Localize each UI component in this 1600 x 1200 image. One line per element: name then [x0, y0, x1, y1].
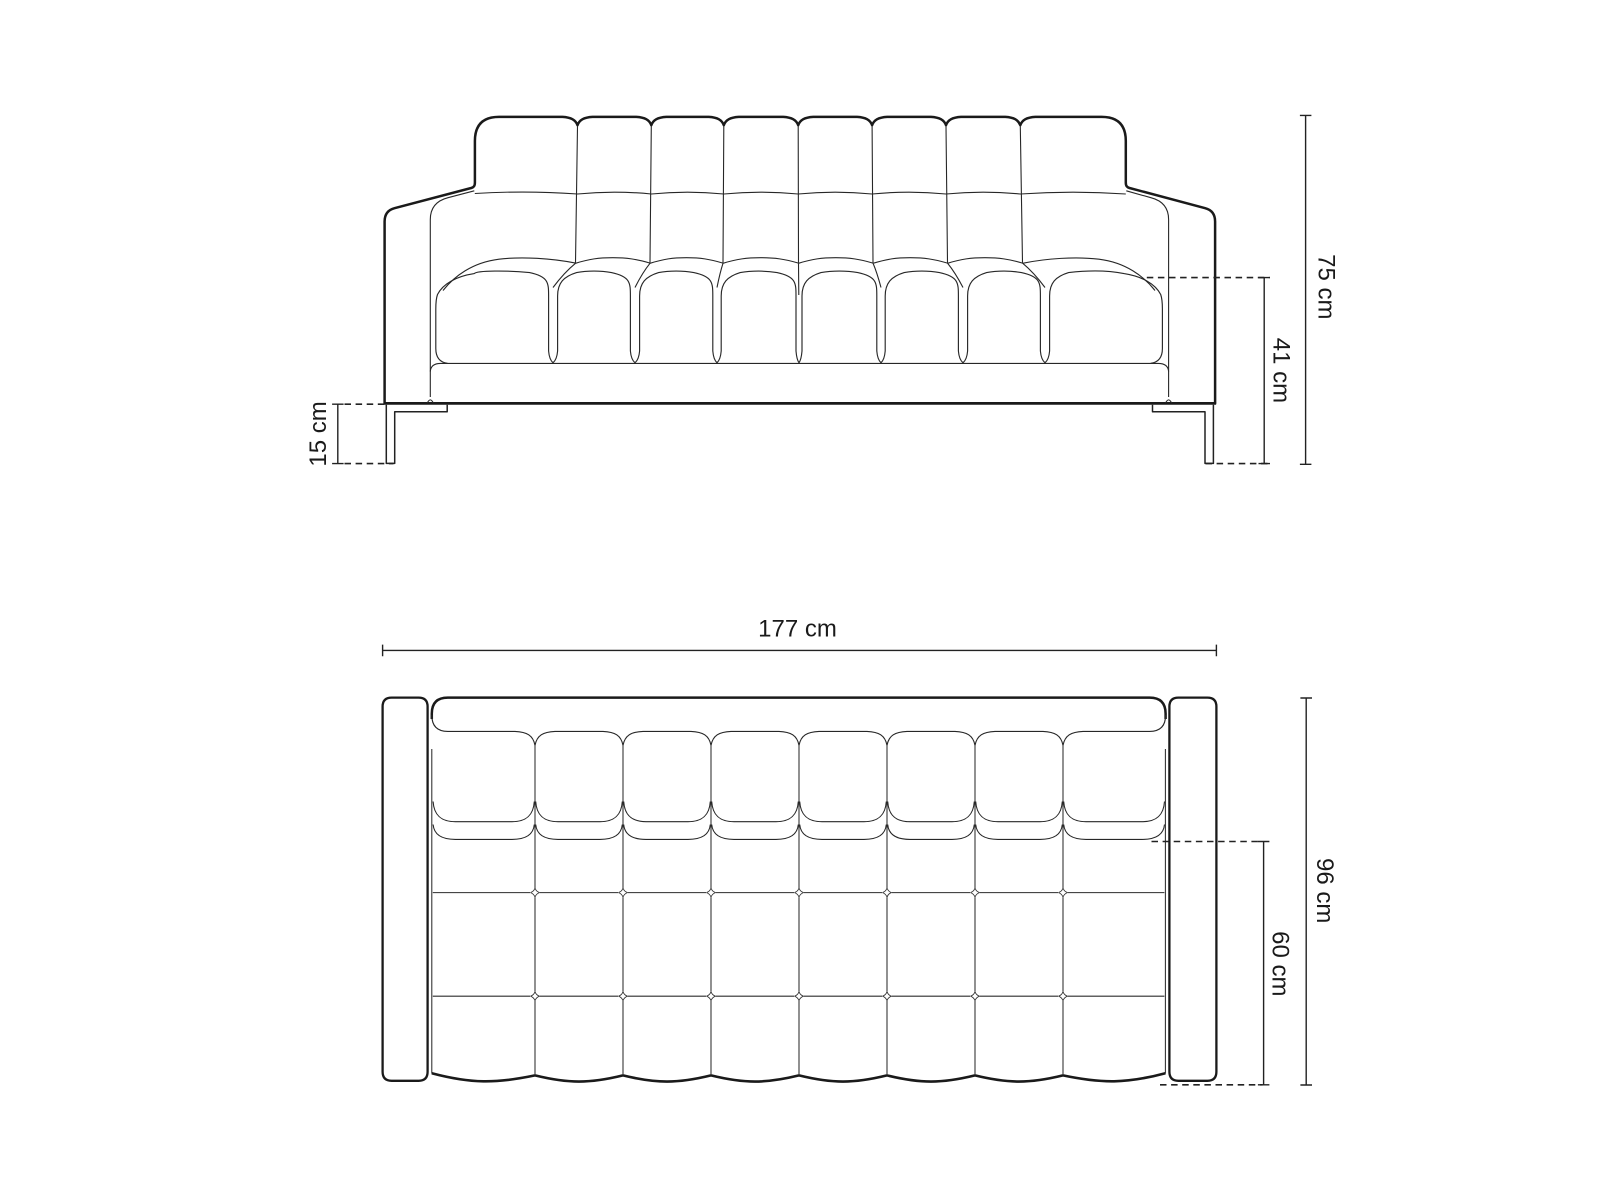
svg-text:177 cm: 177 cm — [758, 616, 837, 643]
svg-text:75 cm: 75 cm — [1313, 254, 1340, 319]
svg-text:96 cm: 96 cm — [1311, 858, 1338, 923]
svg-text:15 cm: 15 cm — [305, 401, 332, 466]
svg-text:41 cm: 41 cm — [1267, 338, 1294, 403]
svg-text:60 cm: 60 cm — [1267, 931, 1294, 996]
